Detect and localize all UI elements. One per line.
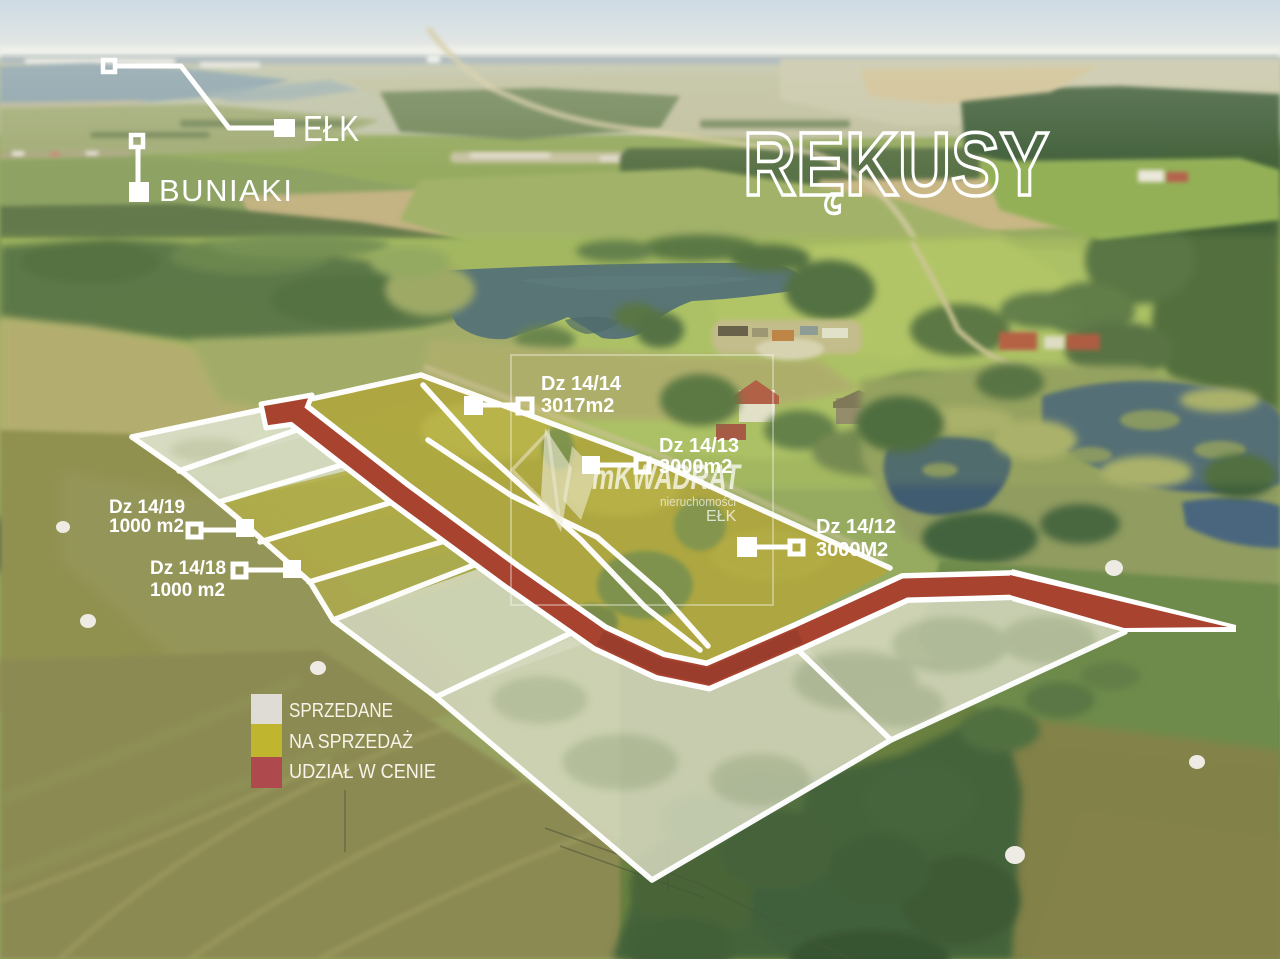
svg-text:NA SPRZEDAŻ: NA SPRZEDAŻ <box>289 730 413 753</box>
svg-text:Dz 14/19: Dz 14/19 <box>109 497 185 518</box>
svg-text:BUNIAKI: BUNIAKI <box>159 173 294 208</box>
svg-text:Dz 14/14: Dz 14/14 <box>541 373 622 395</box>
svg-text:1000 m2: 1000 m2 <box>109 516 184 537</box>
svg-text:Dz 14/13: Dz 14/13 <box>659 435 739 457</box>
svg-text:EŁK: EŁK <box>303 108 359 149</box>
svg-text:UDZIAŁ W CENIE: UDZIAŁ W CENIE <box>289 761 436 783</box>
svg-text:nieruchomości: nieruchomości <box>660 494 736 509</box>
svg-text:Dz 14/12: Dz 14/12 <box>816 516 896 538</box>
svg-text:3017m2: 3017m2 <box>541 395 614 417</box>
svg-text:SPRZEDANE: SPRZEDANE <box>289 700 393 722</box>
svg-text:3000m2: 3000m2 <box>659 456 732 478</box>
svg-text:EŁK: EŁK <box>706 508 737 525</box>
svg-text:3000M2: 3000M2 <box>816 539 888 561</box>
svg-text:Dz 14/18: Dz 14/18 <box>150 558 226 579</box>
svg-text:RĘKUSY: RĘKUSY <box>743 115 1049 215</box>
svg-text:1000 m2: 1000 m2 <box>150 580 225 601</box>
